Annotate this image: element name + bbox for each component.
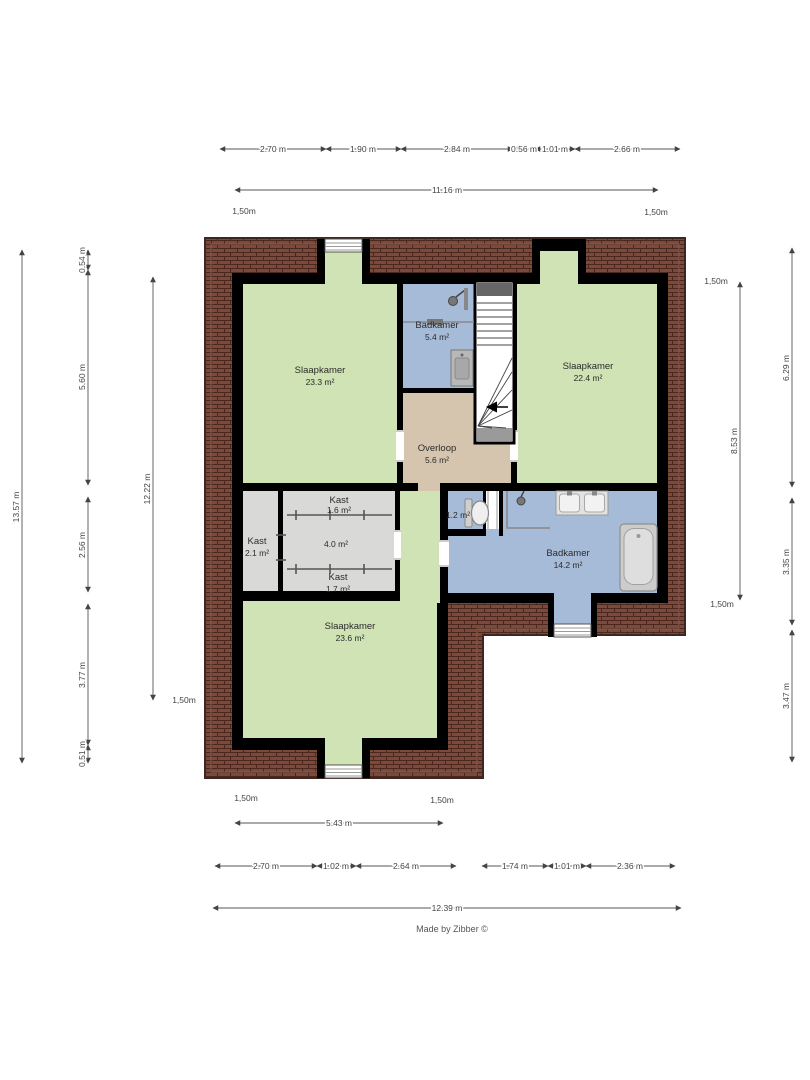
- room-label: Slaapkamer: [563, 361, 614, 372]
- corridor-strip: [400, 491, 440, 603]
- svg-text:2.70 m: 2.70 m: [253, 861, 279, 871]
- room-area: 14.2 m²: [554, 560, 583, 570]
- window-bottom-dormer: [325, 765, 362, 778]
- dimension-right-inner: 8.53 m: [729, 282, 740, 600]
- svg-text:0.56 m: 0.56 m: [511, 144, 537, 154]
- svg-text:1.74 m: 1.74 m: [502, 861, 528, 871]
- svg-text:11.16 m: 11.16 m: [432, 185, 462, 195]
- svg-text:2.36 m: 2.36 m: [617, 861, 643, 871]
- height-marker: 1,50m: [430, 795, 454, 805]
- sink-icon-top: [451, 350, 473, 386]
- svg-text:3.47 m: 3.47 m: [781, 683, 791, 709]
- height-marker: 1,50m: [172, 695, 196, 705]
- svg-text:0.51 m: 0.51 m: [77, 741, 87, 767]
- room-label: Slaapkamer: [325, 621, 376, 632]
- svg-text:2.64 m: 2.64 m: [393, 861, 419, 871]
- room-area: 23.6 m²: [336, 633, 365, 643]
- dimension-top-total: 11.16 m: [235, 185, 658, 195]
- room-label: Slaapkamer: [295, 365, 346, 376]
- bathtub-icon: [620, 524, 657, 591]
- room-area: 2.1 m²: [245, 548, 269, 558]
- svg-text:2.70 m: 2.70 m: [260, 144, 286, 154]
- room-bedroom-top-right: [517, 284, 657, 483]
- svg-text:2.66 m: 2.66 m: [614, 144, 640, 154]
- room-area: 1.7 m²: [326, 584, 350, 594]
- dormer-bedroom-top-right: [540, 251, 578, 285]
- door-bedroom-top-left: [396, 430, 404, 462]
- room-label: Badkamer: [546, 548, 589, 559]
- svg-text:1.90 m: 1.90 m: [350, 144, 376, 154]
- svg-text:13.57 m: 13.57 m: [11, 492, 21, 523]
- dimension-left-segments: 0.54 m 5.60 m 2.56 m 3.77 m 0.51 m: [77, 247, 88, 767]
- dimension-right-segments: 6.29 m 3.35 m 3.47 m: [781, 248, 792, 762]
- door-closet-mid: [394, 530, 401, 560]
- room-label: Badkamer: [415, 320, 458, 331]
- svg-text:1.01 m: 1.01 m: [542, 144, 568, 154]
- room-area: 22.4 m²: [574, 373, 603, 383]
- svg-text:5.43 m: 5.43 m: [326, 818, 352, 828]
- svg-text:2.84 m: 2.84 m: [444, 144, 470, 154]
- svg-text:2.56 m: 2.56 m: [77, 532, 87, 558]
- svg-text:6.29 m: 6.29 m: [781, 355, 791, 381]
- height-marker: 1,50m: [710, 599, 734, 609]
- room-label: Overloop: [418, 443, 457, 454]
- height-marker: 1,50m: [234, 793, 258, 803]
- dimension-left-outer: 13.57 m: [11, 250, 22, 763]
- stairs: [475, 281, 514, 443]
- room-label: Kast: [247, 536, 266, 547]
- svg-text:1.02 m: 1.02 m: [323, 861, 349, 871]
- room-label: Kast: [328, 572, 347, 583]
- dimension-bottom-partial: 5.43 m: [235, 818, 443, 828]
- room-area: 5.6 m²: [425, 455, 449, 465]
- dormer-bedroom-top-left: [325, 251, 362, 285]
- svg-text:12.39 m: 12.39 m: [432, 903, 463, 913]
- floor-plan: Slaapkamer 23.3 m² Badkamer 5.4 m² Slaap…: [0, 0, 810, 1080]
- window-top-dormer: [325, 239, 362, 252]
- room-area: 1.6 m²: [327, 505, 351, 515]
- height-marker: 1,50m: [704, 276, 728, 286]
- room-area: 5.4 m²: [425, 332, 449, 342]
- svg-text:3.77 m: 3.77 m: [77, 662, 87, 688]
- door-bathroom-main: [439, 540, 449, 567]
- height-marker: 1,50m: [232, 206, 256, 216]
- svg-text:12.22 m: 12.22 m: [142, 474, 152, 505]
- dimension-bottom-total: 12.39 m: [213, 903, 681, 913]
- svg-text:1.01 m: 1.01 m: [554, 861, 580, 871]
- credit-text: Made by Zibber ©: [416, 924, 488, 934]
- room-area: 4.0 m²: [324, 539, 348, 549]
- stairs-landing-bottom: [477, 428, 512, 441]
- height-marker: 1,50m: [644, 207, 668, 217]
- dimension-left-inner: 12.22 m: [142, 277, 153, 700]
- dimension-top-segments: 2.70 m 1.90 m 2.84 m 0.56 m 1.01 m 2.66 …: [220, 144, 680, 154]
- sink-icon-main: [556, 491, 608, 515]
- dimension-bottom-segments: 2.70 m 1.02 m 2.64 m 1.74 m 1.01 m 2.36 …: [215, 861, 675, 871]
- room-area: 1.2 m²: [446, 510, 470, 520]
- svg-text:5.60 m: 5.60 m: [77, 364, 87, 390]
- landing-door-gap-floor: [418, 483, 440, 491]
- svg-text:3.35 m: 3.35 m: [781, 549, 791, 575]
- dormer-bathroom-main: [554, 593, 591, 624]
- svg-text:8.53 m: 8.53 m: [729, 428, 739, 454]
- dormer-bedroom-bottom: [325, 738, 362, 765]
- stairs-landing-top: [477, 283, 512, 296]
- svg-text:0.54 m: 0.54 m: [77, 247, 87, 273]
- window-bathroom-dormer: [554, 624, 591, 637]
- room-area: 23.3 m²: [306, 377, 335, 387]
